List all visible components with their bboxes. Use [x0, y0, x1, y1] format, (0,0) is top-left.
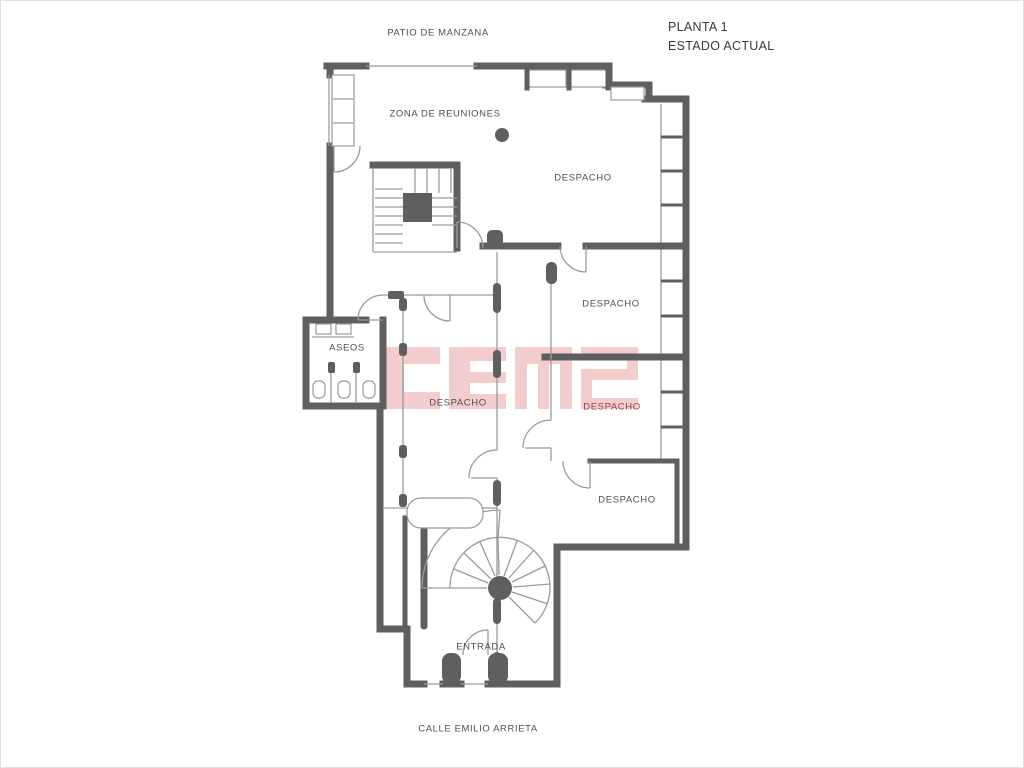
label-entrada: ENTRADA — [456, 642, 506, 653]
column — [495, 128, 509, 142]
left-window-band — [332, 75, 354, 146]
plan-canvas: PLANTA 1 ESTADO ACTUAL PATIO DE MANZANA … — [0, 0, 1024, 768]
toilet — [338, 381, 350, 398]
label-despacho-low: DESPACHO — [583, 402, 640, 413]
title-line2: ESTADO ACTUAL — [668, 37, 774, 56]
title-line1: PLANTA 1 — [668, 18, 774, 37]
toilet — [363, 381, 375, 398]
label-despacho-center: DESPACHO — [429, 398, 486, 409]
toilet-fixtures — [312, 324, 375, 403]
main-staircase — [375, 168, 457, 243]
title-block: PLANTA 1 ESTADO ACTUAL — [668, 18, 774, 56]
lobby-partition — [407, 498, 483, 528]
label-despacho-small: DESPACHO — [598, 495, 655, 506]
floor-plan-drawing — [0, 0, 1024, 768]
column — [487, 230, 503, 246]
toilet — [313, 381, 325, 398]
label-zona-de-reuniones: ZONA DE REUNIONES — [389, 109, 500, 120]
label-calle-emilio-arrieta: CALLE EMILIO ARRIETA — [418, 724, 538, 735]
floor-plan-page: { "title": { "line1": "PLANTA 1", "line2… — [0, 0, 1024, 768]
interior-walls — [373, 165, 686, 683]
sink — [316, 324, 331, 334]
watermark-letter-c-cut — [404, 364, 440, 392]
label-aseos: ASEOS — [329, 343, 365, 354]
label-despacho-mid: DESPACHO — [582, 299, 639, 310]
right-window-band — [661, 104, 683, 461]
label-despacho-top: DESPACHO — [554, 173, 611, 184]
entrance-post — [488, 653, 508, 684]
watermark-letter-e-cut-bottom — [470, 383, 506, 394]
sink — [336, 324, 351, 334]
entrance-post — [442, 653, 461, 684]
watermark-letter-m-cut-left — [527, 364, 538, 409]
label-patio-de-manzana: PATIO DE MANZANA — [387, 28, 489, 39]
